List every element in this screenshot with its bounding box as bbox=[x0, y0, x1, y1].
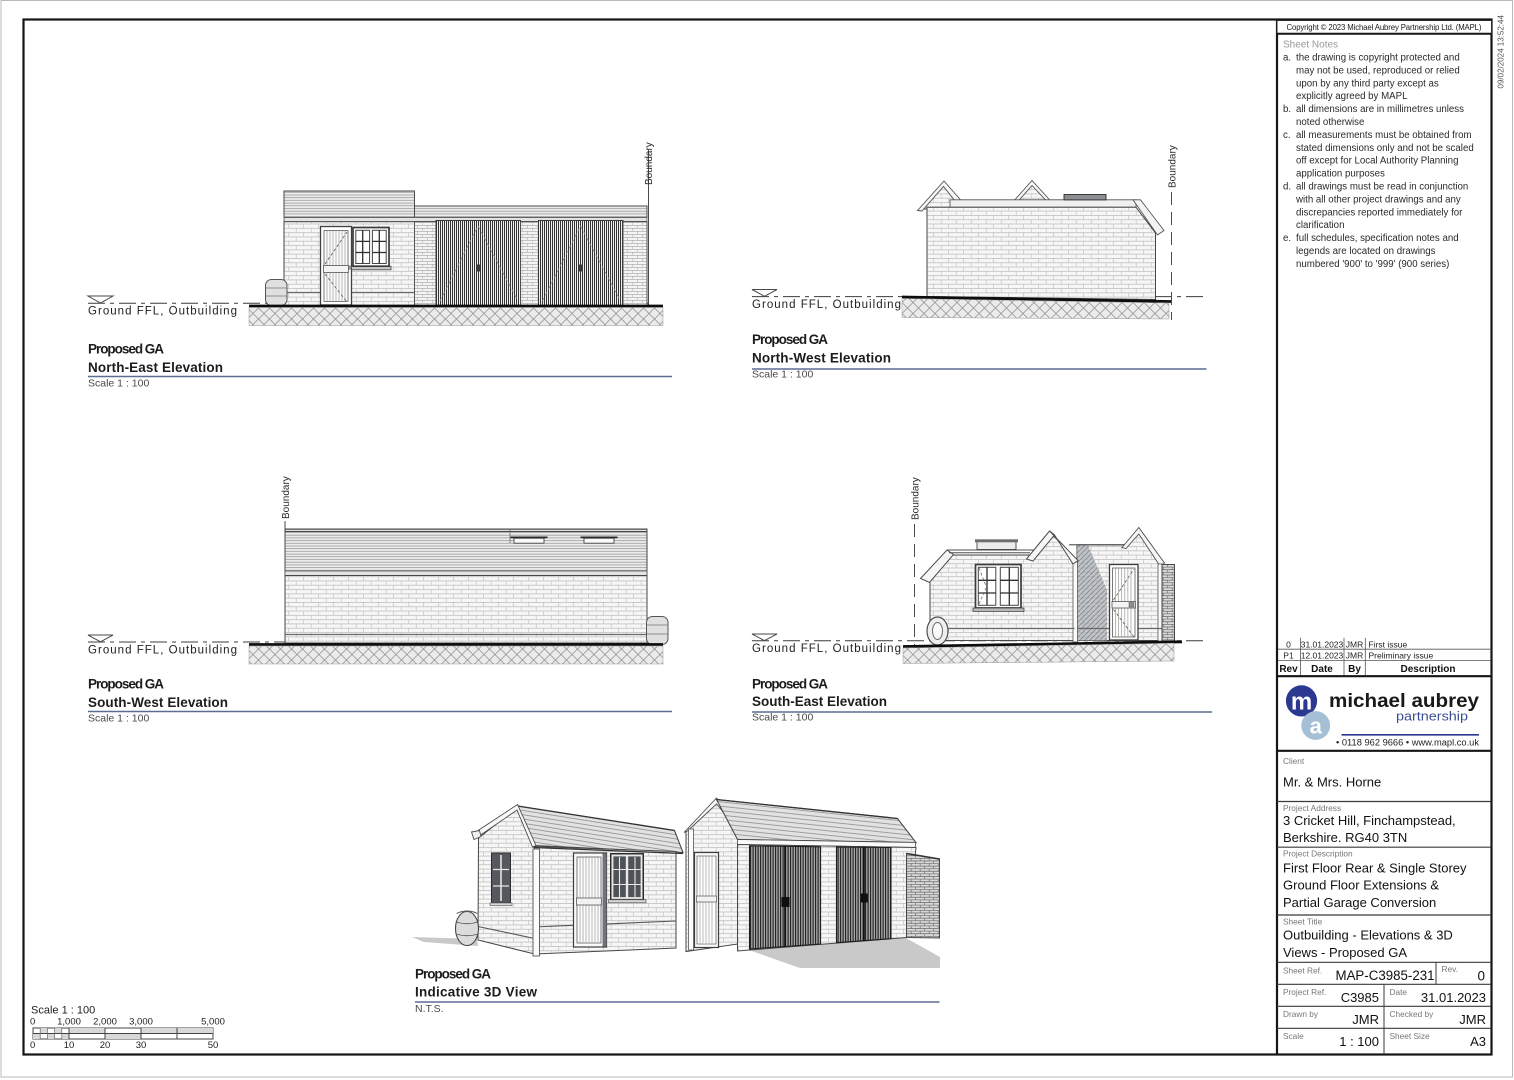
svg-text:Ground FFL, Outbuilding: Ground FFL, Outbuilding bbox=[88, 306, 237, 318]
svg-text:discrepancies reported immedia: discrepancies reported immediately for bbox=[1296, 207, 1463, 218]
svg-text:Scale 1 : 100: Scale 1 : 100 bbox=[752, 712, 813, 724]
svg-text:c.: c. bbox=[1283, 130, 1291, 141]
svg-text:Proposed GA: Proposed GA bbox=[752, 332, 828, 347]
svg-text:North-East Elevation: North-East Elevation bbox=[88, 360, 223, 375]
svg-text:Berkshire. RG40 3TN: Berkshire. RG40 3TN bbox=[1283, 830, 1407, 845]
svg-text:0: 0 bbox=[1477, 969, 1485, 984]
svg-text:Scale 1 : 100: Scale 1 : 100 bbox=[88, 713, 149, 725]
svg-text:MAP-C3985-231: MAP-C3985-231 bbox=[1336, 968, 1435, 983]
svg-text:all dimensions are in millimet: all dimensions are in millimetres unless bbox=[1296, 104, 1464, 115]
svg-text:a: a bbox=[1310, 714, 1323, 739]
svg-text:Partial Garage Conversion: Partial Garage Conversion bbox=[1283, 895, 1436, 910]
svg-text:e.: e. bbox=[1283, 233, 1291, 244]
svg-text:all measurements must be obtai: all measurements must be obtained from bbox=[1296, 130, 1472, 141]
svg-text:09/02/2024 13:52:44: 09/02/2024 13:52:44 bbox=[1497, 15, 1506, 89]
svg-text:clarification: clarification bbox=[1296, 220, 1344, 231]
svg-text:50: 50 bbox=[208, 1040, 219, 1051]
svg-text:Scale 1 : 100: Scale 1 : 100 bbox=[88, 378, 149, 390]
svg-text:JMR: JMR bbox=[1459, 1012, 1486, 1027]
svg-text:3 Cricket Hill, Finchampstead,: 3 Cricket Hill, Finchampstead, bbox=[1283, 813, 1456, 828]
svg-text:stated dimensions only and not: stated dimensions only and not be scaled bbox=[1296, 143, 1474, 154]
svg-text:31.01.2023: 31.01.2023 bbox=[1301, 639, 1344, 649]
svg-text:5,000: 5,000 bbox=[201, 1017, 225, 1028]
svg-text:d.: d. bbox=[1283, 182, 1291, 193]
svg-text:Sheet Size: Sheet Size bbox=[1390, 1031, 1431, 1041]
svg-text:full schedules, specification: full schedules, specification notes and bbox=[1296, 233, 1459, 244]
svg-text:application purposes: application purposes bbox=[1296, 169, 1385, 180]
svg-text:all drawings must be read in c: all drawings must be read in conjunction bbox=[1296, 182, 1468, 193]
svg-text:b.: b. bbox=[1283, 104, 1291, 115]
svg-text:off except for Local Authority: off except for Local Authority Planning bbox=[1296, 156, 1458, 167]
svg-text:0: 0 bbox=[30, 1017, 35, 1028]
svg-text:• 0118 962 9666 • www.mapl.c: • 0118 962 9666 • www.mapl.co.uk bbox=[1336, 738, 1480, 748]
svg-text:Proposed GA: Proposed GA bbox=[752, 677, 828, 692]
svg-text:a.: a. bbox=[1283, 53, 1291, 64]
svg-text:N.T.S.: N.T.S. bbox=[415, 1003, 444, 1015]
svg-text:Views - Proposed GA: Views - Proposed GA bbox=[1283, 945, 1407, 960]
svg-text:0: 0 bbox=[30, 1040, 35, 1051]
svg-text:Rev.: Rev. bbox=[1442, 964, 1458, 974]
svg-text:By: By bbox=[1348, 664, 1361, 675]
svg-text:Proposed GA: Proposed GA bbox=[415, 967, 491, 982]
svg-text:A3: A3 bbox=[1470, 1034, 1486, 1049]
svg-text:South-East Elevation: South-East Elevation bbox=[752, 694, 887, 709]
svg-text:Ground FFL, Outbuilding: Ground FFL, Outbuilding bbox=[752, 643, 901, 655]
svg-text:Boundary: Boundary bbox=[911, 477, 922, 520]
svg-text:Date: Date bbox=[1390, 987, 1408, 997]
svg-text:Ground FFL, Outbuilding: Ground FFL, Outbuilding bbox=[752, 299, 901, 311]
svg-text:30: 30 bbox=[136, 1040, 147, 1051]
svg-text:North-West Elevation: North-West Elevation bbox=[752, 351, 891, 366]
svg-text:3,000: 3,000 bbox=[129, 1017, 153, 1028]
svg-text:First issue: First issue bbox=[1369, 639, 1408, 649]
svg-text:Mr. & Mrs. Horne: Mr. & Mrs. Horne bbox=[1283, 775, 1381, 790]
svg-text:m: m bbox=[1291, 689, 1312, 716]
svg-text:0: 0 bbox=[1286, 639, 1291, 649]
svg-text:Ground Floor Extensions &: Ground Floor Extensions & bbox=[1283, 878, 1439, 893]
svg-text:Outbuilding - Elevations & 3D: Outbuilding - Elevations & 3D bbox=[1283, 928, 1453, 943]
svg-text:Scale 1 : 100: Scale 1 : 100 bbox=[752, 369, 813, 381]
svg-text:partnership: partnership bbox=[1396, 709, 1468, 724]
svg-text:C3985: C3985 bbox=[1341, 990, 1379, 1005]
svg-text:10: 10 bbox=[64, 1040, 75, 1051]
svg-text:Boundary: Boundary bbox=[1168, 145, 1179, 188]
svg-text:1 : 100: 1 : 100 bbox=[1339, 1034, 1379, 1049]
svg-text:South-West Elevation: South-West Elevation bbox=[88, 695, 228, 710]
svg-text:2,000: 2,000 bbox=[93, 1017, 117, 1028]
svg-text:Sheet Title: Sheet Title bbox=[1283, 916, 1323, 926]
svg-text:upon by any third party except: upon by any third party except as bbox=[1296, 78, 1439, 89]
svg-text:Checked by: Checked by bbox=[1390, 1009, 1435, 1019]
svg-text:Client: Client bbox=[1283, 756, 1305, 766]
svg-text:Preliminary issue: Preliminary issue bbox=[1369, 651, 1434, 661]
svg-text:explicitly agreed by MAPL: explicitly agreed by MAPL bbox=[1296, 91, 1408, 102]
svg-text:Boundary: Boundary bbox=[281, 476, 292, 519]
svg-text:legends are located on drawing: legends are located on drawings bbox=[1296, 246, 1436, 257]
svg-text:P1: P1 bbox=[1283, 651, 1294, 661]
svg-text:the drawing is copyright prote: the drawing is copyright protected and bbox=[1296, 53, 1460, 64]
svg-text:Date: Date bbox=[1311, 664, 1333, 675]
svg-text:Proposed GA: Proposed GA bbox=[88, 342, 164, 357]
svg-text:Indicative 3D View: Indicative 3D View bbox=[415, 985, 537, 1000]
svg-text:1,000: 1,000 bbox=[57, 1017, 81, 1028]
svg-text:First Floor Rear & Single Stor: First Floor Rear & Single Storey bbox=[1283, 860, 1467, 875]
svg-text:Project Description: Project Description bbox=[1283, 849, 1353, 859]
svg-text:Drawn by: Drawn by bbox=[1283, 1009, 1319, 1019]
svg-text:Boundary: Boundary bbox=[644, 142, 655, 185]
svg-text:Sheet Ref.: Sheet Ref. bbox=[1283, 965, 1322, 975]
svg-text:JMR: JMR bbox=[1352, 1012, 1379, 1027]
svg-text:20: 20 bbox=[100, 1040, 111, 1051]
svg-text:Scale 1 : 100: Scale 1 : 100 bbox=[31, 1005, 95, 1017]
svg-text:Sheet Notes: Sheet Notes bbox=[1283, 40, 1338, 51]
svg-text:noted otherwise: noted otherwise bbox=[1296, 117, 1364, 128]
svg-text:JMR: JMR bbox=[1346, 651, 1363, 661]
svg-text:Proposed GA: Proposed GA bbox=[88, 677, 164, 692]
svg-text:JMR: JMR bbox=[1346, 639, 1363, 649]
svg-text:31.01.2023: 31.01.2023 bbox=[1421, 990, 1486, 1005]
svg-text:numbered '900' to '999' (900 s: numbered '900' to '999' (900 series) bbox=[1296, 259, 1449, 270]
svg-text:Ground FFL, Outbuilding: Ground FFL, Outbuilding bbox=[88, 645, 237, 657]
svg-text:Copyright © 2023 Michael Aubre: Copyright © 2023 Michael Aubrey Partners… bbox=[1287, 23, 1482, 32]
svg-text:Scale: Scale bbox=[1283, 1031, 1304, 1041]
svg-text:Rev: Rev bbox=[1279, 664, 1298, 675]
svg-text:Project Ref.: Project Ref. bbox=[1283, 987, 1326, 997]
svg-text:with all other project drawing: with all other project drawings and any bbox=[1295, 194, 1461, 205]
svg-text:may not be used, reproduced or: may not be used, reproduced or relied bbox=[1296, 65, 1460, 76]
svg-text:Description: Description bbox=[1400, 664, 1455, 675]
svg-text:Project Address: Project Address bbox=[1283, 803, 1341, 813]
svg-text:12.01.2023: 12.01.2023 bbox=[1301, 651, 1344, 661]
